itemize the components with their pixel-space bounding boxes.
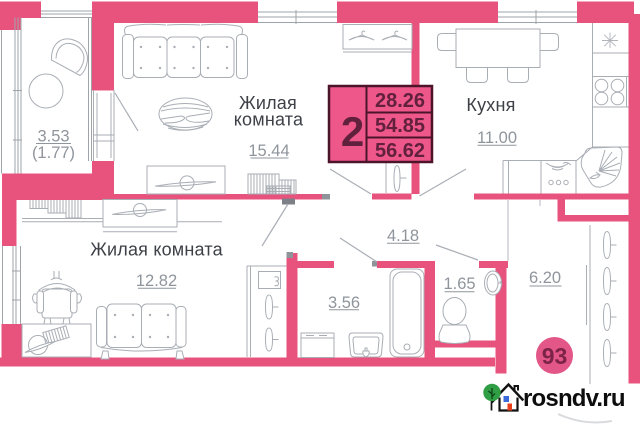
svg-text:56.62: 56.62 [375,140,425,162]
svg-text:комната: комната [234,110,304,130]
svg-text:28.26: 28.26 [375,90,425,112]
svg-text:rosndv.ru: rosndv.ru [523,385,625,412]
svg-text:54.85: 54.85 [375,115,425,137]
svg-text:11.00: 11.00 [477,129,517,147]
svg-text:2: 2 [341,108,364,155]
svg-text:4.18: 4.18 [387,227,419,245]
svg-text:12.82: 12.82 [136,272,177,290]
svg-text:3.53: 3.53 [37,128,69,146]
svg-text:93: 93 [542,343,568,369]
svg-text:Жилая комната: Жилая комната [90,240,223,260]
svg-text:Кухня: Кухня [466,95,515,115]
svg-text:(1.77): (1.77) [32,144,75,162]
svg-text:1.65: 1.65 [443,275,475,293]
svg-text:15.44: 15.44 [248,142,289,160]
svg-text:6.20: 6.20 [529,269,561,287]
